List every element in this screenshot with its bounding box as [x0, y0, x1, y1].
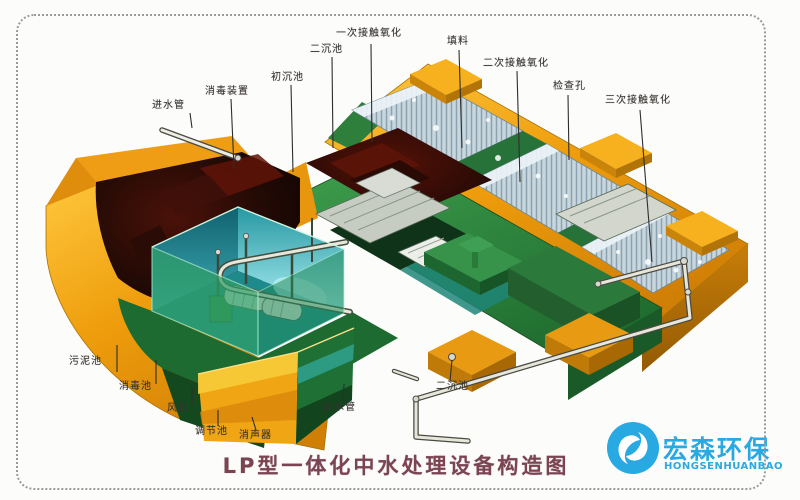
label-outlet-pipe: 出水管	[323, 402, 356, 413]
label-silencer: 消声器	[239, 430, 272, 441]
label-secondary-contact-oxidation: 二次接触氧化	[483, 58, 549, 69]
logo-name-en: HONGSENHUANBAO	[664, 461, 783, 472]
diagram-title: LP型一体化中水处理设备构造图	[206, 450, 586, 480]
label-disinfection-device: 消毒装置	[205, 86, 249, 97]
hongsen-logo-icon	[604, 419, 662, 477]
label-inspection-hole: 检查孔	[553, 81, 586, 92]
diagram-page: 一次接触氧化 二沉池 填料 二次接触氧化 检查孔 三次接触氧化 进水管 消毒装置…	[0, 0, 800, 500]
label-primary-settling-tank: 初沉池	[271, 72, 304, 83]
label-inlet-pipe: 进水管	[152, 100, 185, 111]
label-primary-contact-oxidation: 一次接触氧化	[336, 28, 402, 39]
label-sludge-tank: 污泥池	[69, 356, 102, 367]
treatment-unit-illustration	[0, 0, 800, 500]
label-blower: 风机	[167, 403, 189, 414]
label-secondary-settling-tank-2: 二沉池	[436, 381, 469, 392]
label-regulating-tank: 调节池	[195, 426, 228, 437]
label-tertiary-contact-oxidation: 三次接触氧化	[605, 95, 671, 106]
label-secondary-settling-tank: 二沉池	[310, 44, 343, 55]
label-disinfection-tank: 消毒池	[119, 381, 152, 392]
label-filler-media: 填料	[447, 36, 469, 47]
